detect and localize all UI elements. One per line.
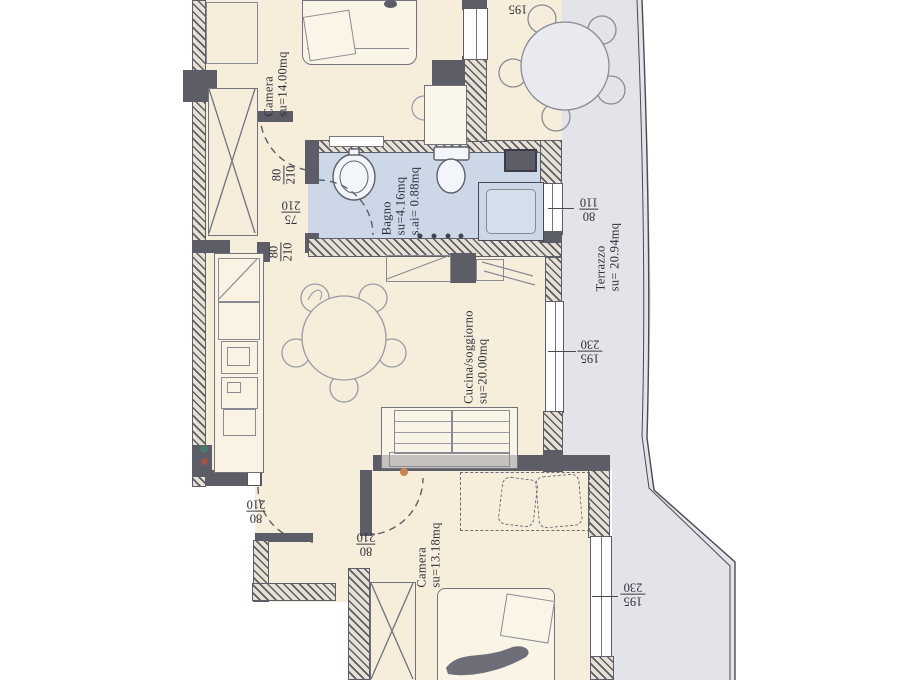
- wall-pillar-bedroom1: [432, 60, 465, 86]
- washing-machine: [504, 149, 537, 172]
- bath-shelf-niche: [329, 136, 384, 147]
- dim-window-bagno: 80 110: [580, 195, 599, 222]
- tv-unit-block: [450, 253, 476, 283]
- room-name: Terrazzo: [594, 245, 608, 291]
- wall-living-right-upper: [545, 257, 562, 303]
- dim-num: 80: [580, 209, 599, 223]
- room-area: su=14.00mq: [276, 51, 290, 116]
- single-bed-pillow-2: [497, 476, 539, 528]
- dim-line-window-cucina: [548, 351, 576, 352]
- dim-num: 195: [621, 594, 646, 608]
- wall-living-right-lower: [543, 411, 563, 453]
- dim-window-camera2: 195 230: [621, 580, 646, 607]
- single-bed-pillow-1: [535, 473, 583, 529]
- dim-door-camera2: 80 210: [357, 530, 376, 557]
- dim-door-camera1: 80 210: [270, 166, 297, 185]
- floor-plan: Camera su=14.00mq Bagno su=4.16mq s.ai= …: [0, 0, 910, 680]
- dim-den: 210: [247, 497, 266, 510]
- room-label-bagno: Bagno su=4.16mq s.ai= 0.88mq: [380, 167, 421, 236]
- pillow-camera1: [303, 10, 356, 62]
- sofa-cushion-left: [394, 410, 452, 454]
- dim-den: 230: [624, 580, 643, 593]
- room-area: su=4.16mq: [394, 177, 408, 236]
- dim-num: 80: [267, 243, 281, 262]
- room-name: Camera: [415, 547, 429, 588]
- wardrobe-camera2: [370, 582, 416, 680]
- room-area: su= 20.94mq: [608, 223, 622, 292]
- dim-window-top: 195: [509, 2, 528, 15]
- dot-green: [200, 445, 208, 453]
- dim-door-cucina: 80 210: [267, 243, 294, 262]
- room-label-terrazzo: Terrazzo su= 20.94mq: [594, 223, 622, 292]
- dim-num: 80: [357, 544, 376, 558]
- door-leaf-bedroom2: [360, 470, 372, 536]
- window-bedroom2: [590, 536, 612, 660]
- wall-corridor-stub: [192, 240, 230, 253]
- dresser-camera1: [424, 85, 467, 145]
- entrance-jamb: [247, 472, 261, 486]
- sofa-cushion-right: [452, 410, 510, 454]
- dim-door-ingresso: 80 210: [247, 497, 266, 524]
- page-outside-2: [253, 602, 349, 680]
- wall-bath-right-upper: [540, 140, 562, 185]
- dot-orange: [400, 468, 408, 476]
- bedside-lamp-dot: [384, 0, 397, 8]
- dim-den: 210: [357, 530, 376, 543]
- dim-den: 210: [282, 243, 295, 262]
- wall-bath-left-upper: [305, 140, 319, 184]
- window-bathroom: [541, 183, 563, 235]
- dim-den: 210: [285, 166, 298, 185]
- room-name: Camera: [262, 76, 276, 117]
- room-label-camera1: Camera su=14.00mq: [262, 51, 290, 116]
- dim-num: 195: [578, 351, 603, 365]
- room-area: su=13.18mq: [429, 522, 443, 587]
- kitchen-cabinet-2: [223, 409, 256, 436]
- room-name: Bagno: [380, 201, 394, 235]
- dim-line-window-camera2: [592, 596, 618, 597]
- shower-tray: [486, 189, 536, 234]
- room-name: Cucina/soggiorno: [462, 310, 476, 404]
- dim-window-cucina: 195 230: [578, 337, 603, 364]
- dim-num: 75: [282, 212, 301, 226]
- window-living: [545, 301, 564, 413]
- dim-num: 80: [247, 511, 266, 525]
- dim-num: 80: [270, 166, 284, 185]
- kitchen-cabinet: [218, 302, 260, 340]
- kitchen-sink-basin: [227, 347, 250, 366]
- sideboard-living: [386, 255, 451, 282]
- wall-bedroom2-right-lower: [590, 656, 614, 680]
- shelf-living: [476, 259, 504, 281]
- window-bedroom1: [463, 8, 488, 60]
- dim-den: 110: [580, 195, 598, 208]
- room-label-cucina: Cucina/soggiorno su=20.00mq: [462, 310, 490, 404]
- room-label-camera2: Camera su=13.18mq: [415, 522, 443, 587]
- dim-line-window-bagno: [548, 208, 574, 209]
- wall-vestibule-bottom: [252, 583, 336, 601]
- room-area: su=20.00mq: [476, 339, 490, 404]
- dot-red: [201, 458, 208, 465]
- dim-den: 210: [282, 198, 301, 211]
- wall-bedroom2-left: [348, 568, 370, 680]
- pillow-camera2: [500, 593, 555, 643]
- wardrobe-corridor: [208, 88, 258, 236]
- kitchen-fridge: [218, 258, 260, 302]
- room-area-2: s.ai= 0.88mq: [408, 167, 422, 236]
- wall-bedroom2-right-upper: [588, 470, 610, 538]
- sofa-base: [389, 452, 510, 467]
- dim-door-bagno: 75 210: [282, 198, 301, 225]
- dim-value: 195: [509, 2, 528, 15]
- kitchen-stove-burner: [227, 382, 241, 393]
- dim-den: 230: [581, 337, 600, 350]
- desk-top-left: [206, 2, 258, 64]
- page-outside-1: [128, 487, 253, 680]
